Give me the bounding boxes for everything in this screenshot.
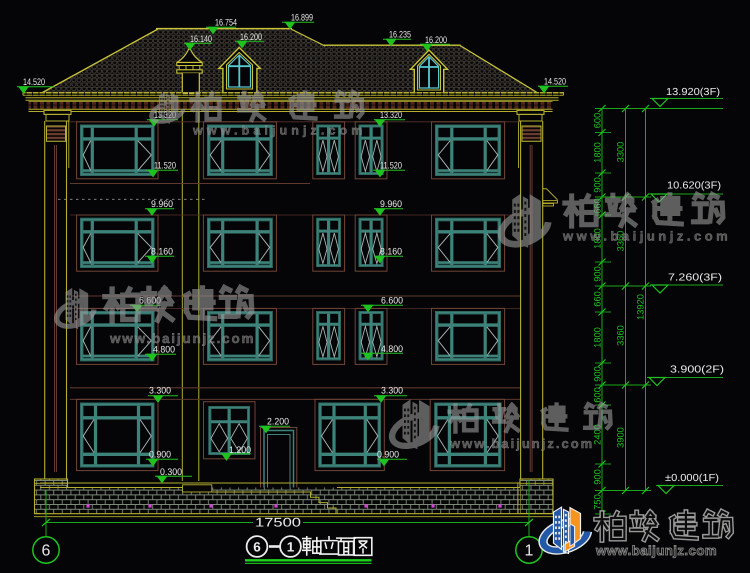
svg-text:www.baijunjz.com: www.baijunjz.com bbox=[109, 331, 255, 346]
svg-text:660: 660 bbox=[593, 291, 603, 307]
svg-text:±0.000(1F): ±0.000(1F) bbox=[665, 473, 719, 484]
svg-text:16.200: 16.200 bbox=[240, 32, 262, 43]
svg-text:6: 6 bbox=[253, 540, 261, 555]
svg-text:11.520: 11.520 bbox=[380, 160, 402, 171]
svg-text:13.320: 13.320 bbox=[380, 110, 402, 121]
svg-text:16.140: 16.140 bbox=[190, 34, 212, 45]
svg-text:16.754: 16.754 bbox=[215, 18, 237, 29]
svg-text:0.300: 0.300 bbox=[160, 467, 182, 478]
svg-text:0.900: 0.900 bbox=[377, 449, 399, 460]
svg-text:900: 900 bbox=[593, 177, 603, 193]
svg-text:16.899: 16.899 bbox=[291, 13, 313, 24]
svg-text:14.520: 14.520 bbox=[23, 77, 45, 88]
svg-text:3360: 3360 bbox=[616, 325, 626, 346]
svg-text:www.baijunjz.com: www.baijunjz.com bbox=[562, 229, 731, 244]
svg-text:1: 1 bbox=[525, 543, 534, 560]
svg-text:7.260(3F): 7.260(3F) bbox=[668, 272, 722, 283]
svg-text:13.920(3F): 13.920(3F) bbox=[666, 87, 720, 98]
svg-text:3300: 3300 bbox=[616, 142, 626, 163]
svg-text:13920: 13920 bbox=[636, 294, 646, 320]
svg-text:3.900(2F): 3.900(2F) bbox=[670, 364, 724, 375]
svg-text:www.baijunjz.com: www.baijunjz.com bbox=[449, 436, 594, 451]
svg-text:16.200: 16.200 bbox=[425, 35, 447, 46]
svg-text:900: 900 bbox=[593, 266, 603, 282]
svg-text:1800: 1800 bbox=[593, 327, 603, 348]
svg-text:600: 600 bbox=[593, 387, 603, 403]
svg-text:900: 900 bbox=[593, 469, 603, 485]
svg-text:6: 6 bbox=[42, 543, 51, 560]
svg-text:3.300: 3.300 bbox=[381, 385, 403, 396]
svg-text:750: 750 bbox=[593, 494, 603, 510]
svg-text:17500: 17500 bbox=[255, 516, 301, 530]
svg-text:8.160: 8.160 bbox=[151, 246, 173, 257]
svg-text:600: 600 bbox=[593, 113, 603, 129]
svg-text:16.235: 16.235 bbox=[389, 30, 411, 41]
svg-text:www.baijunjz.com: www.baijunjz.com bbox=[192, 124, 366, 138]
svg-text:1: 1 bbox=[287, 540, 295, 555]
svg-text:9.960: 9.960 bbox=[151, 199, 173, 210]
svg-text:11.520: 11.520 bbox=[154, 160, 176, 171]
svg-text:9.960: 9.960 bbox=[380, 199, 402, 210]
svg-text:4.800: 4.800 bbox=[381, 344, 403, 355]
svg-text:3900: 3900 bbox=[616, 427, 626, 448]
svg-text:6.600: 6.600 bbox=[381, 295, 403, 306]
svg-text:10.620(3F): 10.620(3F) bbox=[667, 180, 721, 191]
svg-text:14.520: 14.520 bbox=[544, 76, 566, 87]
svg-text:900: 900 bbox=[593, 366, 603, 382]
svg-text:2.200: 2.200 bbox=[267, 416, 289, 427]
svg-text:1800: 1800 bbox=[593, 142, 603, 163]
svg-text:www.baijunjz.com: www.baijunjz.com bbox=[595, 543, 717, 558]
svg-text:0.900: 0.900 bbox=[149, 449, 171, 460]
svg-text:8.160: 8.160 bbox=[380, 246, 402, 257]
svg-text:3.300: 3.300 bbox=[149, 385, 171, 396]
svg-text:1.200: 1.200 bbox=[229, 445, 251, 456]
